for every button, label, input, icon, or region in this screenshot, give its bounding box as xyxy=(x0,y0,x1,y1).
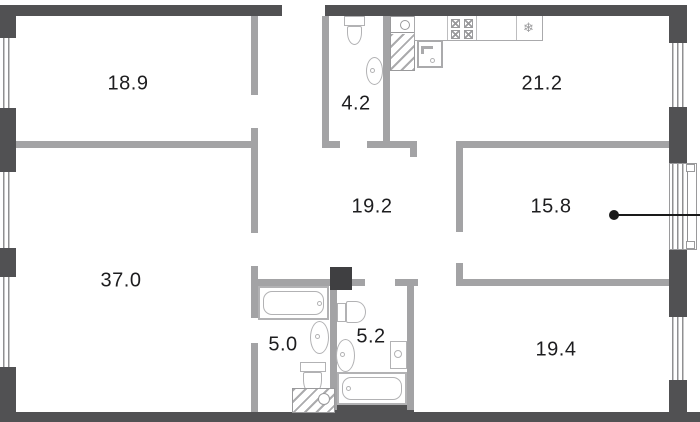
right-wall-segment xyxy=(669,250,687,317)
interior-wall xyxy=(352,279,365,286)
balcony-door xyxy=(669,163,697,250)
left-wall-segment xyxy=(0,5,16,38)
room-label-bathroom-right: 5.2 xyxy=(356,326,385,349)
window-panes xyxy=(672,43,684,107)
balcony-door-panes xyxy=(672,164,688,249)
window xyxy=(0,172,16,248)
room-label-bathroom-left: 5.0 xyxy=(268,334,297,357)
bathtub-inner xyxy=(342,377,402,400)
small-sink-basin xyxy=(400,20,410,30)
top-wall-left xyxy=(0,5,282,16)
interior-wall xyxy=(322,16,329,142)
interior-wall xyxy=(258,279,330,286)
room-label-living-room: 37.0 xyxy=(101,270,142,293)
leader-line xyxy=(614,214,700,216)
window-panes xyxy=(3,38,13,108)
interior-wall xyxy=(251,148,258,233)
window-panes xyxy=(3,172,13,248)
duct-sink-compartment xyxy=(391,17,414,33)
interior-wall xyxy=(322,141,340,148)
left-wall-segment xyxy=(0,367,16,422)
small-sink-basin xyxy=(318,393,330,405)
toilet-bowl-symbol xyxy=(346,301,366,323)
room-label-bathroom-top: 4.2 xyxy=(341,93,370,116)
interior-wall xyxy=(456,141,669,148)
balcony-door-tab xyxy=(686,241,695,249)
faucet-icon xyxy=(421,46,424,54)
room-label-bedroom-3: 19.4 xyxy=(536,339,577,362)
toilet-tank-symbol xyxy=(337,303,346,322)
top-wall-right xyxy=(325,5,687,16)
bathtub-symbol xyxy=(258,286,329,320)
interior-wall xyxy=(383,16,390,142)
sink-drain xyxy=(430,58,435,63)
duct-shaft xyxy=(390,16,415,71)
bathtub-drain xyxy=(317,301,322,306)
right-wall-segment xyxy=(669,380,687,412)
sink-drain xyxy=(370,68,375,73)
stove-burner-icon xyxy=(464,30,473,39)
interior-wall xyxy=(251,266,258,318)
interior-wall xyxy=(407,286,414,410)
window-panes xyxy=(3,277,13,367)
interior-wall xyxy=(251,343,258,412)
counter-divider xyxy=(476,16,477,40)
stove-burner-icon xyxy=(464,19,473,28)
right-wall-segment xyxy=(669,107,687,163)
right-wall-segment xyxy=(669,5,687,43)
bathtub-drain xyxy=(346,386,351,391)
window xyxy=(0,38,16,108)
interior-wall xyxy=(16,141,258,148)
kitchen-counter: ❄ xyxy=(414,16,543,41)
window xyxy=(669,43,687,107)
interior-wall xyxy=(410,148,417,157)
window-panes xyxy=(672,317,684,380)
interior-wall xyxy=(395,279,418,286)
room-label-kitchen: 21.2 xyxy=(522,73,563,96)
kitchen-sink-symbol xyxy=(417,40,443,68)
bathtub-symbol xyxy=(337,372,407,405)
fridge-snowflake-icon: ❄ xyxy=(523,21,534,34)
room-label-bedroom-1: 18.9 xyxy=(108,73,149,96)
bottom-wall-thick-block xyxy=(330,404,414,414)
stove-burner-icon xyxy=(451,19,460,28)
washer-door xyxy=(394,350,402,358)
bathtub-inner xyxy=(263,291,324,315)
left-wall-segment xyxy=(0,108,16,172)
window xyxy=(669,317,687,380)
washing-machine-symbol xyxy=(390,341,407,369)
leader-dot xyxy=(609,210,619,220)
sink-symbol xyxy=(336,339,355,372)
counter-divider xyxy=(447,16,448,40)
room-label-bedroom-2: 15.8 xyxy=(531,196,572,219)
counter-divider xyxy=(516,16,517,40)
interior-wall xyxy=(251,16,258,95)
floor-plan: ❄ 18.9 4.2 21.2 19.2 15.8 37.0 5.0 5.2 1… xyxy=(0,0,700,422)
sink-drain xyxy=(340,352,345,357)
left-wall-segment xyxy=(0,248,16,277)
balcony-door-tab xyxy=(686,164,695,172)
toilet-tank-symbol xyxy=(344,16,365,26)
interior-wall xyxy=(456,279,669,286)
interior-wall xyxy=(456,141,463,232)
stove-burner-icon xyxy=(451,30,460,39)
interior-wall xyxy=(251,128,258,148)
window xyxy=(0,277,16,367)
sink-drain xyxy=(315,334,320,339)
interior-wall xyxy=(367,141,417,148)
duct-hatch xyxy=(391,34,414,70)
vent-shaft-filled xyxy=(330,267,352,290)
toilet-tank-symbol xyxy=(300,362,326,372)
toilet-bowl-symbol xyxy=(347,26,362,45)
room-label-hallway: 19.2 xyxy=(352,196,393,219)
